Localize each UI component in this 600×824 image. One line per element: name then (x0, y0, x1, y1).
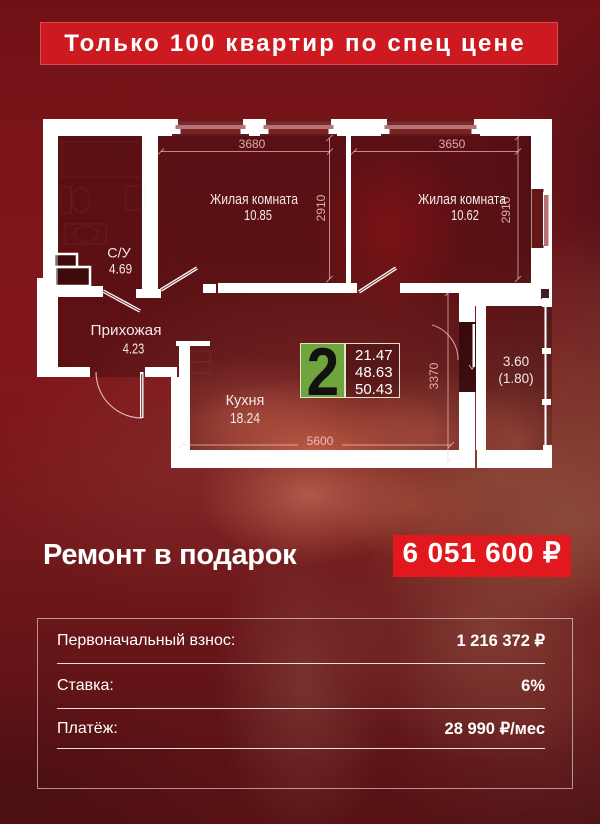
svg-text:С/У: С/У (107, 245, 130, 261)
svg-text:(1.80): (1.80) (498, 371, 533, 386)
svg-text:3.60: 3.60 (503, 354, 529, 369)
svg-text:Жилая комната: Жилая комната (210, 191, 299, 208)
svg-text:2910: 2910 (314, 194, 328, 221)
svg-text:10.85: 10.85 (244, 207, 272, 224)
svg-text:Кухня: Кухня (226, 392, 265, 409)
svg-text:5600: 5600 (307, 434, 334, 448)
svg-text:3650: 3650 (439, 137, 466, 151)
svg-text:3370: 3370 (427, 362, 441, 389)
svg-text:3680: 3680 (239, 137, 266, 151)
svg-text:4.69: 4.69 (109, 261, 132, 277)
svg-text:18.24: 18.24 (230, 410, 260, 427)
svg-text:Прихожая: Прихожая (91, 322, 162, 339)
svg-text:4.23: 4.23 (123, 341, 144, 358)
svg-text:Жилая комната: Жилая комната (418, 191, 507, 208)
svg-text:10.62: 10.62 (451, 207, 479, 224)
